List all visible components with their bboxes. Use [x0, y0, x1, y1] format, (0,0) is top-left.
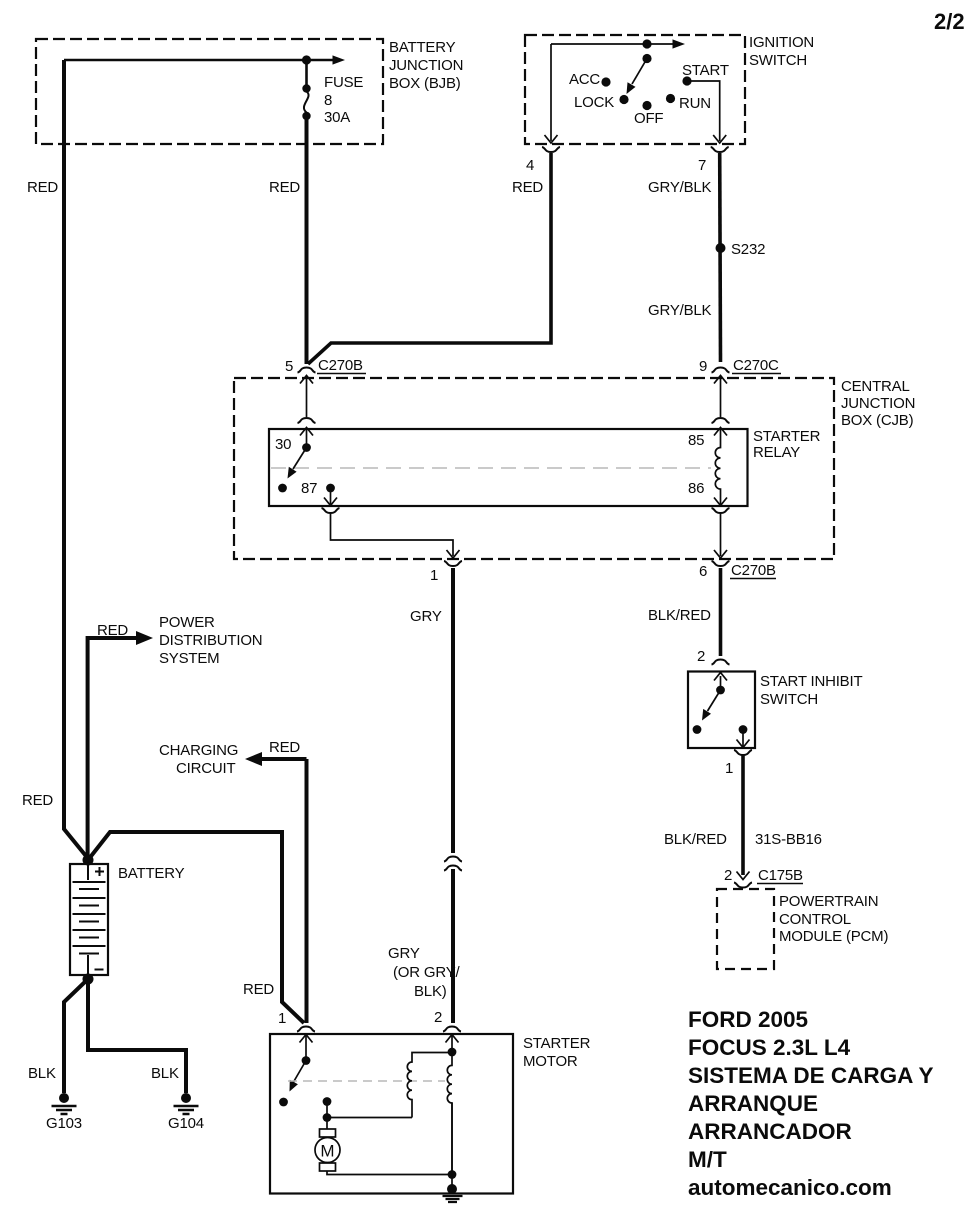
svg-text:STARTER: STARTER	[523, 1035, 591, 1052]
svg-text:8: 8	[324, 92, 332, 109]
svg-text:BLK: BLK	[28, 1065, 56, 1082]
svg-text:RED: RED	[269, 179, 300, 196]
svg-text:BLK/RED: BLK/RED	[648, 607, 711, 624]
svg-text:31S-BB16: 31S-BB16	[755, 831, 822, 848]
svg-text:automecanico.com: automecanico.com	[688, 1175, 892, 1200]
svg-text:RED: RED	[512, 179, 543, 196]
svg-text:7: 7	[698, 157, 706, 174]
svg-text:OFF: OFF	[634, 110, 663, 127]
svg-text:ACC: ACC	[569, 71, 600, 88]
svg-text:CONTROL: CONTROL	[779, 911, 851, 928]
svg-text:BATTERY: BATTERY	[389, 39, 456, 56]
svg-text:BLK: BLK	[151, 1065, 179, 1082]
svg-text:FUSE: FUSE	[324, 74, 363, 91]
svg-text:CHARGING: CHARGING	[159, 742, 238, 759]
svg-text:DISTRIBUTION: DISTRIBUTION	[159, 632, 262, 649]
svg-text:CENTRAL: CENTRAL	[841, 378, 910, 395]
svg-text:RED: RED	[97, 622, 128, 639]
svg-text:M: M	[320, 1142, 334, 1161]
svg-text:5: 5	[285, 358, 293, 375]
svg-text:JUNCTION: JUNCTION	[389, 57, 463, 74]
svg-text:ARRANQUE: ARRANQUE	[688, 1091, 818, 1116]
svg-text:6: 6	[699, 563, 707, 580]
svg-text:1: 1	[430, 567, 438, 584]
svg-text:G103: G103	[46, 1115, 82, 1132]
svg-text:RELAY: RELAY	[753, 444, 800, 461]
svg-text:IGNITION: IGNITION	[749, 34, 814, 51]
svg-text:BLK): BLK)	[414, 983, 447, 1000]
svg-text:POWERTRAIN: POWERTRAIN	[779, 893, 878, 910]
svg-text:C175B: C175B	[758, 867, 803, 884]
svg-text:C270C: C270C	[733, 357, 779, 374]
svg-text:87: 87	[301, 480, 317, 497]
svg-text:SISTEMA DE CARGA Y: SISTEMA DE CARGA Y	[688, 1063, 933, 1088]
svg-text:2/2: 2/2	[934, 9, 965, 34]
svg-text:BATTERY: BATTERY	[118, 865, 185, 882]
svg-text:C270B: C270B	[731, 562, 776, 579]
svg-text:FOCUS 2.3L L4: FOCUS 2.3L L4	[688, 1035, 851, 1060]
svg-text:30A: 30A	[324, 109, 350, 126]
svg-text:SYSTEM: SYSTEM	[159, 650, 219, 667]
svg-text:2: 2	[697, 648, 705, 665]
svg-text:86: 86	[688, 480, 704, 497]
svg-text:SWITCH: SWITCH	[749, 52, 807, 69]
svg-text:STARTER: STARTER	[753, 428, 821, 445]
svg-text:4: 4	[526, 157, 534, 174]
svg-text:GRY/BLK: GRY/BLK	[648, 302, 712, 319]
svg-text:MOTOR: MOTOR	[523, 1053, 578, 1070]
svg-text:BLK/RED: BLK/RED	[664, 831, 727, 848]
svg-text:G104: G104	[168, 1115, 204, 1132]
svg-text:S232: S232	[731, 241, 765, 258]
svg-text:CIRCUIT: CIRCUIT	[176, 760, 235, 777]
svg-text:POWER: POWER	[159, 614, 215, 631]
svg-text:GRY: GRY	[410, 608, 442, 625]
svg-text:MODULE (PCM): MODULE (PCM)	[779, 928, 888, 945]
svg-text:9: 9	[699, 358, 707, 375]
svg-text:BOX (CJB): BOX (CJB)	[841, 412, 914, 429]
svg-text:RED: RED	[27, 179, 58, 196]
svg-text:RED: RED	[22, 792, 53, 809]
svg-text:2: 2	[724, 867, 732, 884]
svg-text:85: 85	[688, 432, 704, 449]
svg-text:JUNCTION: JUNCTION	[841, 395, 915, 412]
svg-text:BOX (BJB): BOX (BJB)	[389, 75, 461, 92]
svg-text:(OR GRY/: (OR GRY/	[393, 964, 460, 981]
svg-text:RED: RED	[269, 739, 300, 756]
svg-text:LOCK: LOCK	[574, 94, 614, 111]
svg-text:GRY: GRY	[388, 945, 420, 962]
svg-text:30: 30	[275, 436, 291, 453]
svg-text:FORD 2005: FORD 2005	[688, 1007, 808, 1032]
svg-text:GRY/BLK: GRY/BLK	[648, 179, 712, 196]
svg-text:1: 1	[278, 1010, 286, 1027]
svg-text:SWITCH: SWITCH	[760, 691, 818, 708]
svg-text:M/T: M/T	[688, 1147, 727, 1172]
svg-text:C270B: C270B	[318, 357, 363, 374]
svg-text:RED: RED	[243, 981, 274, 998]
svg-text:2: 2	[434, 1009, 442, 1026]
svg-text:START INHIBIT: START INHIBIT	[760, 673, 862, 690]
svg-text:1: 1	[725, 760, 733, 777]
svg-text:START: START	[682, 62, 729, 79]
svg-text:RUN: RUN	[679, 95, 711, 112]
svg-text:ARRANCADOR: ARRANCADOR	[688, 1119, 852, 1144]
